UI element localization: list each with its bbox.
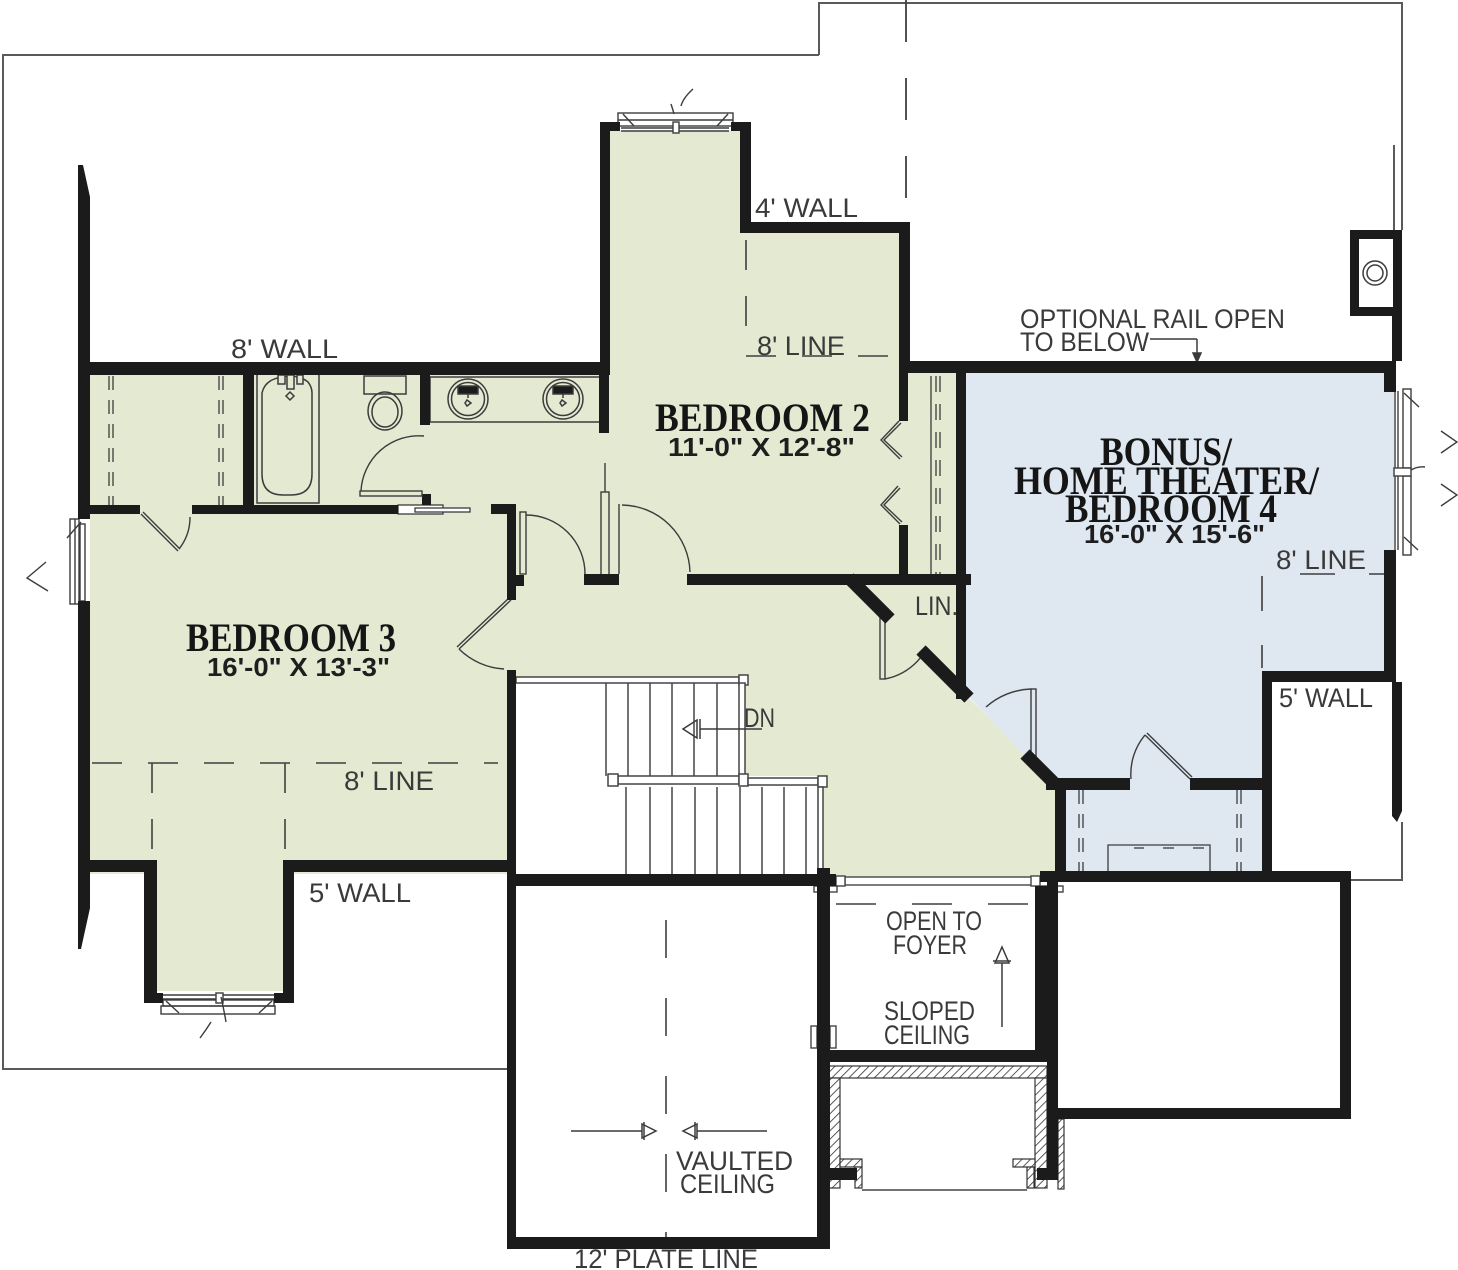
svg-text:CEILING: CEILING bbox=[884, 1020, 970, 1050]
svg-text:8' LINE: 8' LINE bbox=[757, 331, 845, 361]
svg-text:CEILING: CEILING bbox=[680, 1169, 775, 1199]
svg-text:4' WALL: 4' WALL bbox=[755, 193, 858, 223]
svg-text:DN: DN bbox=[744, 703, 775, 733]
svg-text:8' LINE: 8' LINE bbox=[344, 766, 434, 796]
svg-text:8' LINE: 8' LINE bbox=[1276, 545, 1366, 575]
svg-text:16'-0" X 13'-3": 16'-0" X 13'-3" bbox=[207, 652, 390, 682]
svg-text:16'-0" X 15'-6": 16'-0" X 15'-6" bbox=[1084, 519, 1265, 549]
svg-text:TO BELOW: TO BELOW bbox=[1020, 327, 1149, 357]
svg-text:8' WALL: 8' WALL bbox=[231, 334, 338, 364]
svg-text:5' WALL: 5' WALL bbox=[309, 878, 411, 908]
svg-text:5' WALL: 5' WALL bbox=[1279, 683, 1373, 713]
svg-text:LIN.: LIN. bbox=[915, 591, 958, 621]
svg-text:11'-0" X 12'-8": 11'-0" X 12'-8" bbox=[668, 432, 855, 462]
svg-text:FOYER: FOYER bbox=[893, 930, 967, 960]
svg-text:12' PLATE LINE: 12' PLATE LINE bbox=[574, 1244, 758, 1270]
